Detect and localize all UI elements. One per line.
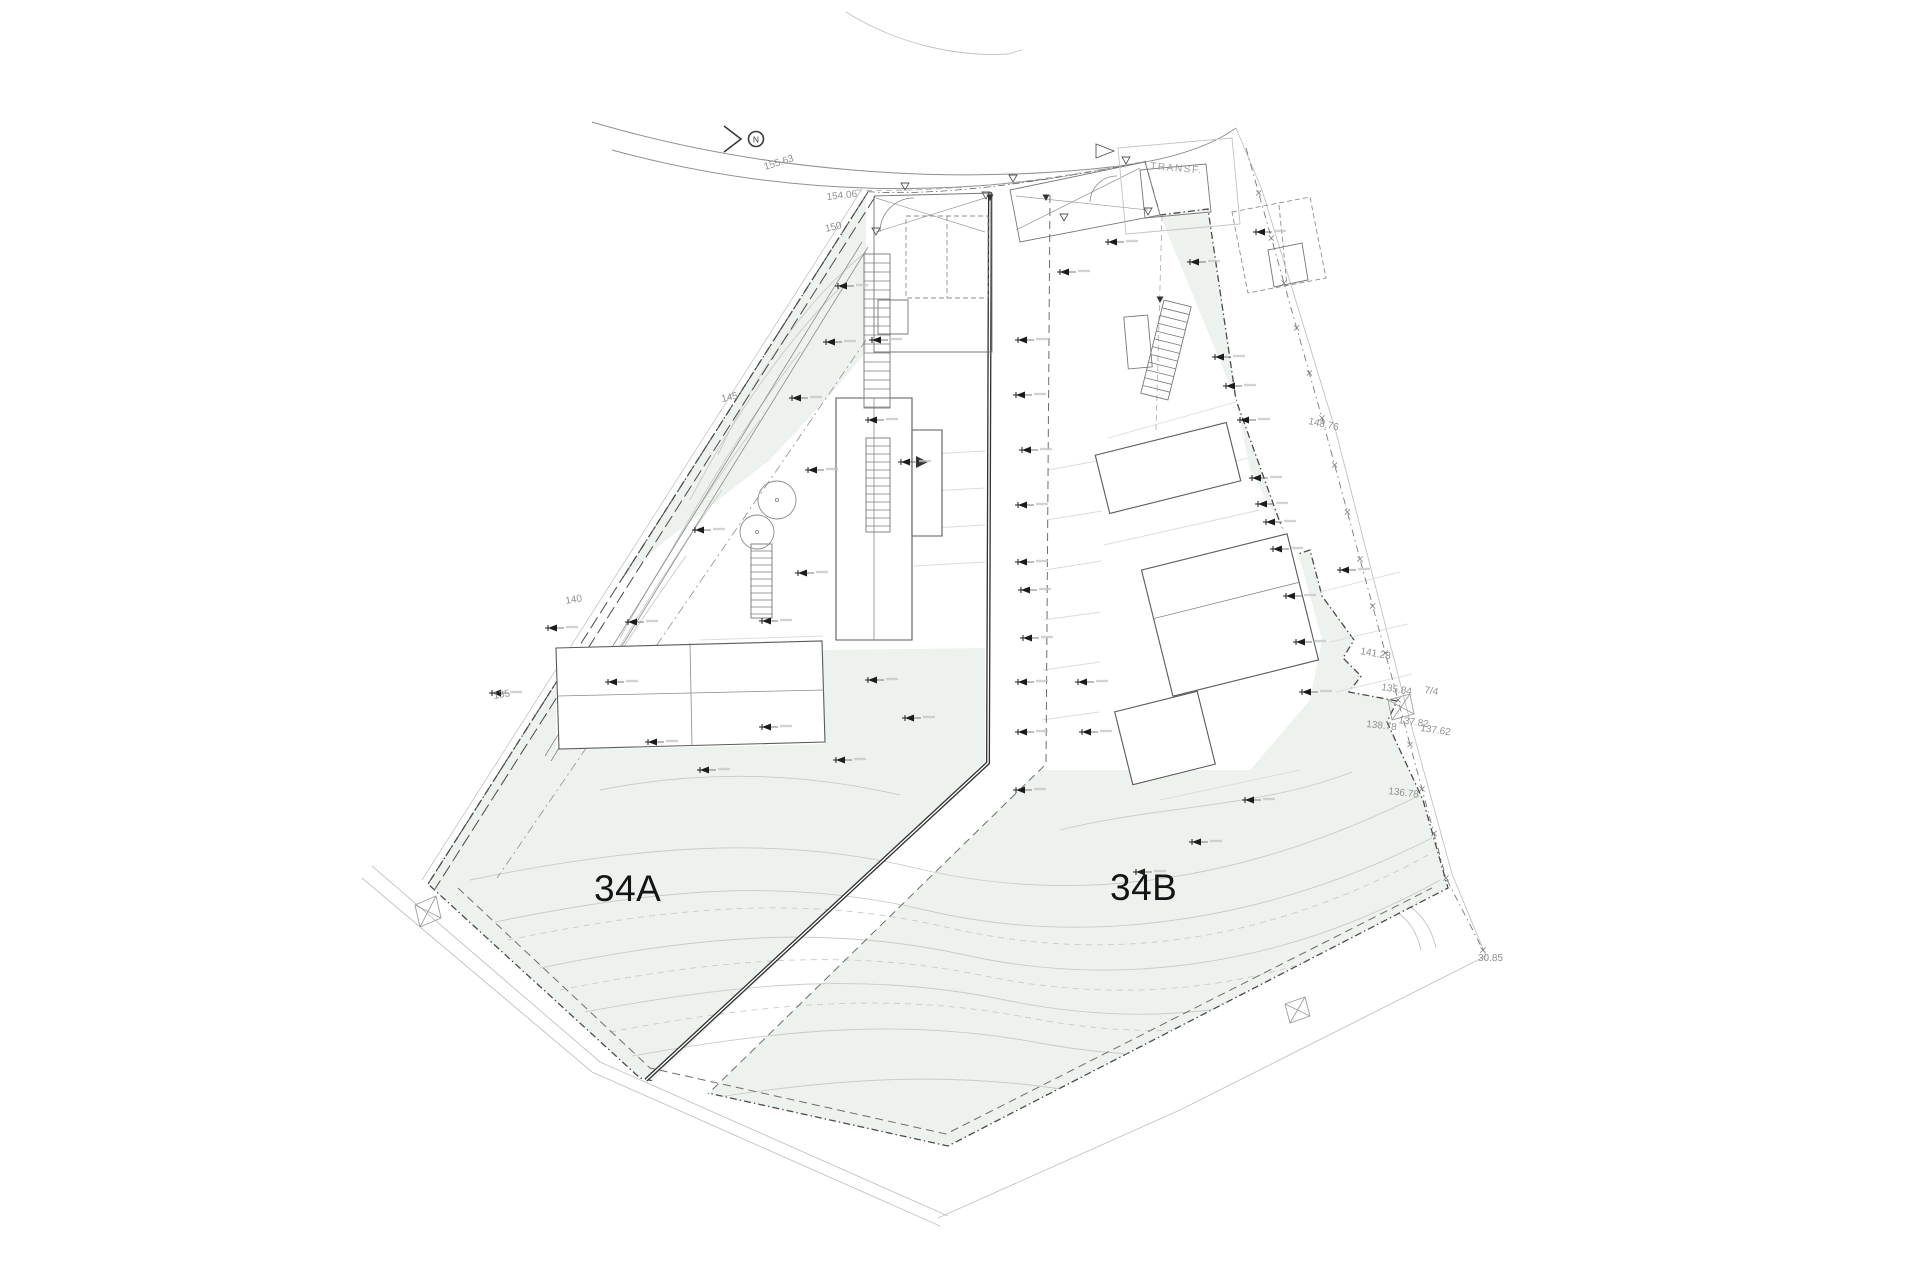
terrace-line: [1320, 572, 1400, 592]
fence-tick: [1407, 742, 1412, 747]
survey-marker-box-south: [1285, 997, 1310, 1023]
spot-cross: [1337, 567, 1343, 573]
elevation-label-road-entry: 154.06: [826, 189, 858, 203]
fence-tick: [1370, 603, 1375, 608]
north-arrow: N: [724, 126, 764, 152]
elevation-label-135-84: 135.84: [1381, 682, 1413, 698]
spot-elevation-marker: [1337, 567, 1370, 574]
fence-tick: [1345, 509, 1350, 514]
spot-cross: [1253, 229, 1259, 235]
contour-label-150: 150: [824, 220, 843, 235]
lot-b-existing-notch: [1268, 243, 1308, 287]
survey-triangle: [1122, 157, 1130, 164]
spot-cross: [545, 625, 551, 631]
top-curve-road-edge: [846, 12, 1022, 54]
fence-tick: [1332, 462, 1337, 467]
elevation-label-148-76: 148.76: [1307, 416, 1340, 433]
contour-label-135: 135: [493, 688, 512, 702]
north-arrow-chevron: [724, 126, 741, 152]
elevation-label-road-upper: 155.63: [763, 153, 796, 173]
fence-tick: [1307, 370, 1312, 375]
elevation-label-30-85: 30.85: [1478, 953, 1503, 964]
label-lot-34a: 34A: [594, 868, 661, 909]
road-direction-arrow: [1096, 144, 1114, 158]
contour-label-140: 140: [565, 593, 584, 607]
site-plan-canvas: N 34A 34B TRANSF. 155.63 154.06 150 145 …: [0, 0, 1920, 1280]
fence-tick: [1269, 235, 1274, 240]
label-transformer: TRANSF.: [1150, 161, 1204, 177]
north-label: N: [753, 135, 759, 145]
fence-tick: [1357, 556, 1362, 561]
elevation-label-141-28: 141.28: [1359, 646, 1391, 662]
building-a1-annex: [912, 430, 942, 536]
fence-tick: [1294, 325, 1299, 330]
elevation-label-137-62: 137.62: [1420, 723, 1452, 738]
fence-tick: [1419, 786, 1424, 791]
survey-triangle: [1009, 175, 1017, 182]
fence-tick: [1256, 190, 1261, 195]
lot-b-existing-centerline: [1279, 205, 1287, 285]
parcel-ref-label: 7/4: [1424, 685, 1440, 698]
site-plan-drawing: N 34A 34B TRANSF. 155.63 154.06 150 145 …: [0, 0, 1920, 1280]
label-lot-34b: 34B: [1110, 867, 1177, 908]
